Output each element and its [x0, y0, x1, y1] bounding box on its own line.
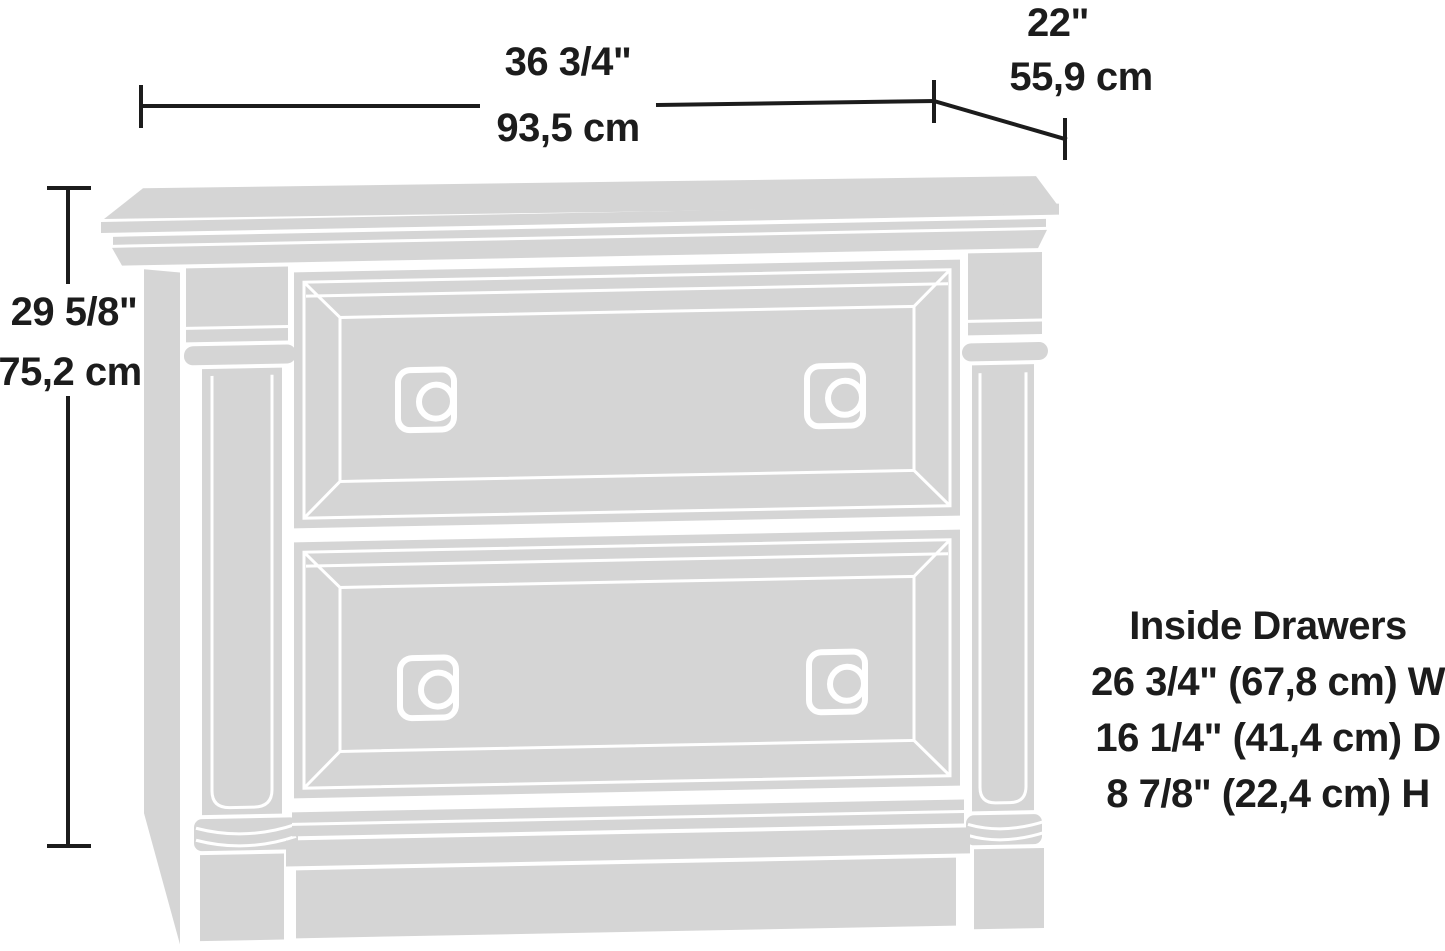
- bottom-drawer-front: [294, 530, 960, 799]
- right-foot: [974, 848, 1044, 929]
- base-plinth-panel: [296, 858, 956, 939]
- bottom-drawer: [294, 530, 960, 799]
- left-column: [184, 266, 298, 941]
- cabinet-base: [286, 799, 970, 938]
- right-capital-line: [968, 320, 1042, 321]
- width-imperial-label: 36 3/4": [505, 42, 632, 82]
- top-drawer: [294, 260, 960, 529]
- right-capital: [968, 252, 1042, 335]
- left-capital: [186, 266, 288, 342]
- right-column: [962, 252, 1048, 930]
- depth-dimension-line: [934, 101, 1065, 158]
- left-foot: [200, 854, 284, 942]
- cabinet-top: [101, 171, 1059, 266]
- right-torus: [962, 342, 1048, 362]
- depth-metric-label: 55,9 cm: [1009, 57, 1152, 97]
- side-panel: [144, 269, 180, 946]
- cabinet: [101, 171, 1059, 946]
- inside-drawers-height: 8 7/8" (22,4 cm) H: [1091, 766, 1445, 822]
- depth-imperial-label: 22": [1027, 3, 1089, 43]
- width-metric-label: 93,5 cm: [496, 108, 639, 148]
- left-shaft: [202, 368, 282, 816]
- inside-drawers-depth: 16 1/4" (41,4 cm) D: [1091, 710, 1445, 766]
- inside-drawers-specs: Inside Drawers 26 3/4" (67,8 cm) W 16 1/…: [1091, 598, 1445, 822]
- left-capital-line: [186, 326, 288, 328]
- height-imperial-label: 29 5/8": [11, 292, 138, 332]
- inside-drawers-width: 26 3/4" (67,8 cm) W: [1091, 654, 1445, 710]
- height-metric-label: 75,2 cm: [0, 352, 142, 392]
- left-torus: [184, 344, 296, 365]
- dimension-diagram: 36 3/4" 93,5 cm 22" 55,9 cm 29 5/8" 75,2…: [0, 0, 1445, 951]
- height-dimension-line: [49, 188, 89, 846]
- inside-drawers-heading: Inside Drawers: [1091, 598, 1445, 654]
